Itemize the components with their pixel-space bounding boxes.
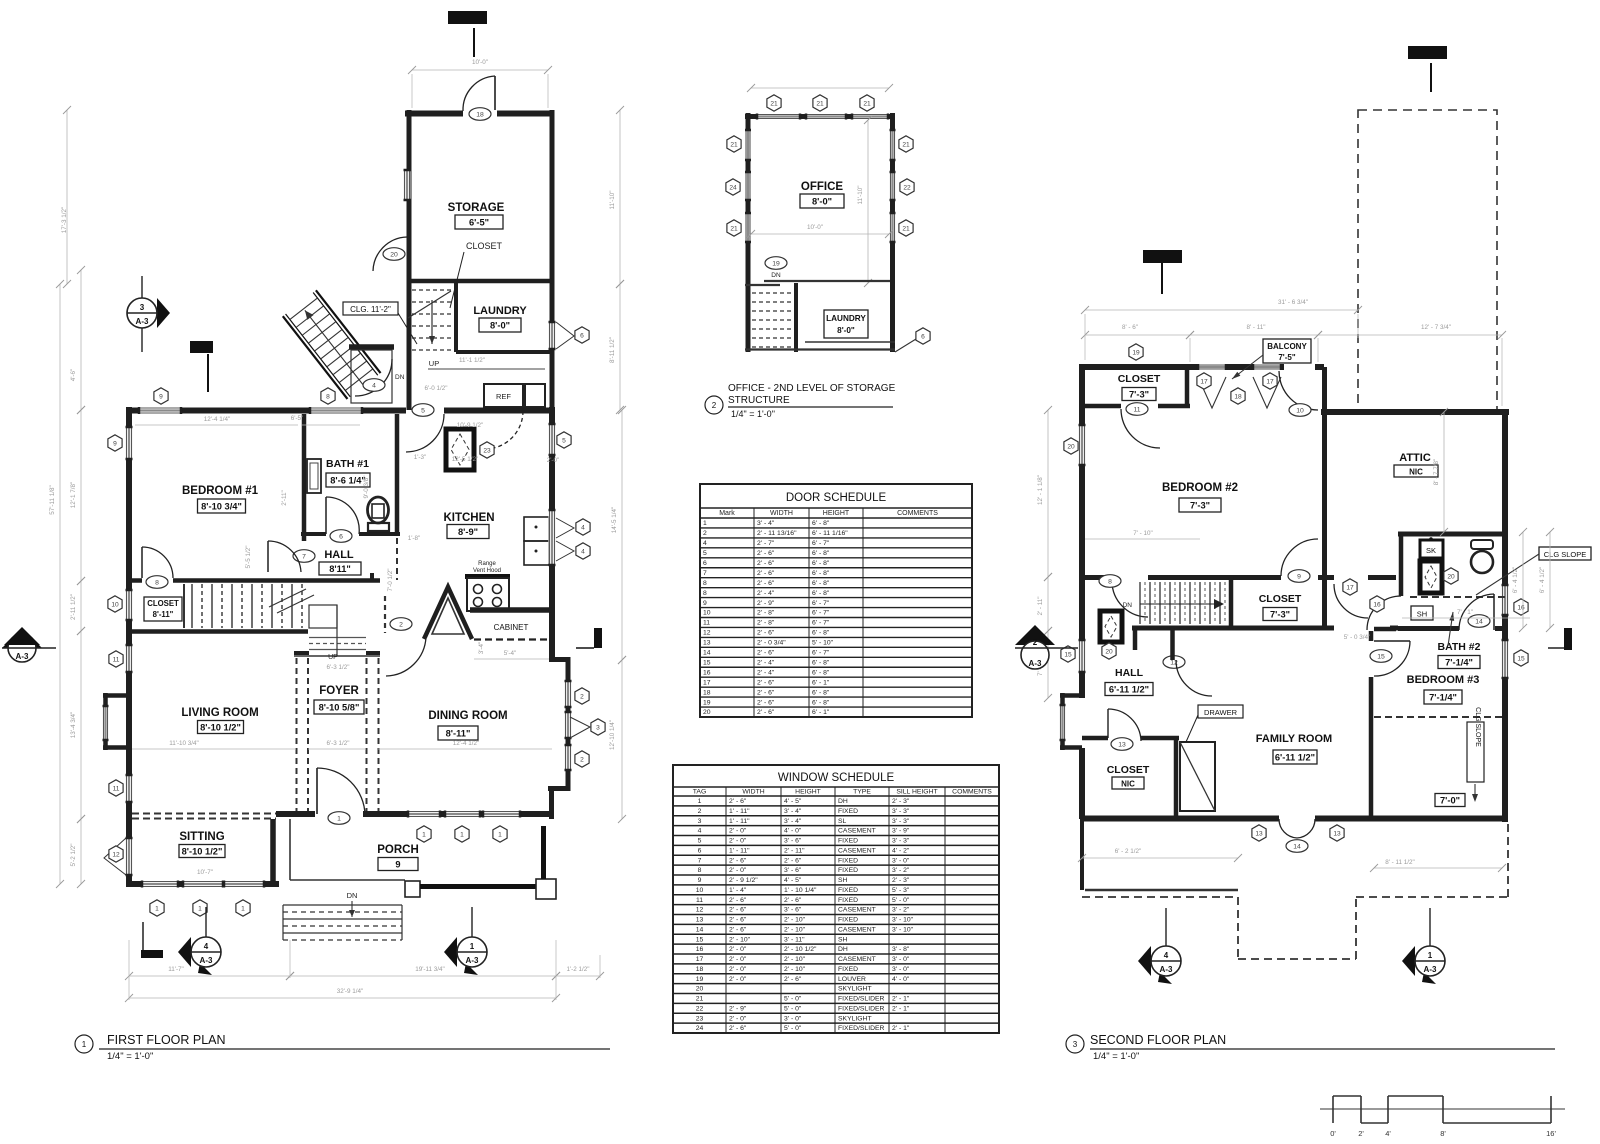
svg-text:6: 6 (580, 332, 584, 339)
svg-text:21: 21 (816, 100, 824, 107)
svg-text:12'-5 1/2": 12'-5 1/2" (452, 456, 479, 463)
svg-text:1: 1 (198, 905, 202, 912)
svg-text:DN: DN (1123, 602, 1133, 609)
svg-text:FIXED: FIXED (838, 897, 858, 904)
svg-text:6'-11 1/2": 6'-11 1/2" (1109, 684, 1149, 694)
svg-text:16': 16' (1546, 1129, 1556, 1138)
svg-text:14: 14 (1475, 618, 1483, 625)
svg-text:13: 13 (696, 917, 704, 924)
svg-text:10: 10 (703, 610, 711, 617)
svg-text:6: 6 (921, 333, 925, 340)
svg-text:8'-0": 8'-0" (837, 326, 855, 335)
svg-text:6: 6 (703, 560, 707, 567)
svg-text:14'-5 1/4": 14'-5 1/4" (611, 507, 618, 534)
svg-text:8'-10 5/8": 8'-10 5/8" (319, 702, 360, 712)
svg-text:5'-4": 5'-4" (504, 650, 517, 657)
svg-text:10'-0": 10'-0" (472, 59, 488, 66)
svg-text:6'-5": 6'-5" (469, 217, 489, 227)
svg-text:5' - 3": 5' - 3" (892, 887, 910, 894)
svg-text:1: 1 (422, 831, 426, 838)
svg-text:8' - 11 1/2": 8' - 11 1/2" (1385, 859, 1415, 866)
svg-text:HALL: HALL (1115, 667, 1144, 679)
svg-text:KITCHEN: KITCHEN (443, 512, 494, 524)
svg-text:FIXED/SLIDER: FIXED/SLIDER (838, 1025, 885, 1032)
svg-text:7'-5": 7'-5" (1278, 353, 1295, 362)
svg-text:12'-1 7/8": 12'-1 7/8" (70, 482, 77, 509)
svg-text:8' - 7 7/8": 8' - 7 7/8" (1433, 459, 1440, 486)
svg-text:10: 10 (111, 601, 119, 608)
svg-text:2' - 10 1/2": 2' - 10 1/2" (784, 946, 817, 953)
svg-text:3' - 0": 3' - 0" (892, 857, 910, 864)
svg-text:2'-0": 2'-0" (547, 457, 560, 464)
svg-text:19: 19 (772, 260, 780, 267)
svg-text:8: 8 (1108, 578, 1112, 585)
svg-text:22: 22 (696, 1005, 704, 1012)
svg-text:A-3: A-3 (1029, 659, 1042, 668)
svg-text:5: 5 (703, 550, 707, 557)
svg-text:DRAWER: DRAWER (1204, 708, 1238, 717)
svg-text:8: 8 (155, 579, 159, 586)
svg-text:FAMILY ROOM: FAMILY ROOM (1256, 733, 1332, 745)
svg-text:4': 4' (1385, 1129, 1391, 1138)
svg-text:5' - 10": 5' - 10" (812, 640, 834, 647)
svg-text:Mark: Mark (719, 510, 735, 517)
svg-text:11'-7": 11'-7" (168, 966, 184, 973)
svg-text:2' - 6": 2' - 6" (729, 1025, 747, 1032)
svg-text:BATH #2: BATH #2 (1438, 641, 1481, 653)
svg-text:2' - 3": 2' - 3" (892, 877, 910, 884)
svg-text:9: 9 (113, 440, 117, 447)
svg-text:22: 22 (903, 184, 911, 191)
svg-text:8' - 11": 8' - 11" (1246, 324, 1265, 331)
svg-text:1'-3": 1'-3" (414, 454, 427, 461)
svg-text:2' - 6": 2' - 6" (757, 689, 775, 696)
svg-text:19: 19 (696, 976, 704, 983)
svg-text:SH: SH (838, 936, 848, 943)
svg-text:7'-0 1/2": 7'-0 1/2" (387, 568, 394, 591)
svg-text:21: 21 (730, 141, 738, 148)
svg-text:5' - 0": 5' - 0" (784, 1025, 802, 1032)
svg-text:Vent Hood: Vent Hood (473, 568, 501, 574)
svg-text:12' - 1 1/8": 12' - 1 1/8" (1037, 475, 1044, 505)
svg-text:8'-0": 8'-0" (490, 320, 510, 330)
svg-text:20: 20 (390, 251, 398, 258)
svg-text:4' - 0": 4' - 0" (784, 828, 802, 835)
svg-text:7'-3": 7'-3" (1129, 389, 1149, 399)
svg-text:4' - 2": 4' - 2" (892, 847, 910, 854)
svg-text:1' - 11": 1' - 11" (729, 808, 750, 815)
svg-text:16: 16 (696, 946, 704, 953)
svg-text:5'-5 1/2": 5'-5 1/2" (245, 545, 252, 568)
svg-text:8'-10 1/2": 8'-10 1/2" (200, 722, 241, 732)
svg-text:2' - 11": 2' - 11" (784, 847, 805, 854)
svg-text:3' - 10": 3' - 10" (892, 917, 914, 924)
svg-text:9: 9 (395, 859, 400, 869)
svg-text:FIXED: FIXED (838, 838, 858, 845)
svg-text:CLOSET: CLOSET (147, 599, 179, 608)
svg-text:LIVING ROOM: LIVING ROOM (181, 707, 258, 719)
svg-text:1' - 10 1/4": 1' - 10 1/4" (784, 887, 817, 894)
svg-text:6' - 4 1/2": 6' - 4 1/2" (1539, 567, 1546, 594)
svg-text:2' - 6": 2' - 6" (729, 926, 747, 933)
svg-text:A-3: A-3 (466, 956, 479, 965)
svg-text:10: 10 (696, 887, 704, 894)
svg-text:14: 14 (696, 926, 704, 933)
svg-text:FIXED/SLIDER: FIXED/SLIDER (838, 996, 885, 1003)
svg-text:6' - 8": 6' - 8" (812, 560, 830, 567)
svg-text:TAG: TAG (693, 789, 706, 796)
svg-text:6' - 1": 6' - 1" (812, 679, 830, 686)
svg-text:2' - 6": 2' - 6" (784, 976, 802, 983)
svg-text:2: 2 (1033, 638, 1038, 647)
svg-text:DOOR SCHEDULE: DOOR SCHEDULE (786, 492, 887, 504)
svg-text:8: 8 (698, 867, 702, 874)
svg-text:8'-11": 8'-11" (446, 728, 471, 738)
svg-text:2' - 10": 2' - 10" (729, 936, 751, 943)
svg-text:1: 1 (460, 831, 464, 838)
svg-text:2' - 6": 2' - 6" (757, 699, 775, 706)
svg-text:12' - 7 3/4": 12' - 7 3/4" (1421, 324, 1451, 331)
svg-text:3' - 4": 3' - 4" (784, 818, 802, 825)
svg-text:BATH #1: BATH #1 (326, 458, 369, 470)
svg-text:17: 17 (1266, 378, 1274, 385)
svg-text:11: 11 (113, 785, 120, 792)
svg-text:SECOND FLOOR PLAN: SECOND FLOOR PLAN (1090, 1033, 1226, 1047)
svg-text:12'-10 1/4": 12'-10 1/4" (609, 720, 616, 750)
svg-text:8'-0": 8'-0" (812, 196, 832, 206)
svg-text:6'-3 1/2": 6'-3 1/2" (326, 740, 349, 747)
svg-text:A-3: A-3 (1424, 965, 1437, 974)
svg-text:SH: SH (1417, 610, 1427, 619)
svg-text:19: 19 (703, 699, 711, 706)
svg-text:2' - 9": 2' - 9" (757, 600, 775, 607)
svg-text:4: 4 (204, 942, 209, 951)
svg-text:2' - 0": 2' - 0" (729, 966, 747, 973)
svg-text:17: 17 (1200, 378, 1208, 385)
svg-text:3' - 4": 3' - 4" (757, 520, 775, 527)
svg-text:CASEMENT: CASEMENT (838, 847, 876, 854)
svg-text:6' - 8": 6' - 8" (812, 580, 830, 587)
svg-text:SK: SK (1426, 546, 1436, 555)
svg-text:2' - 6": 2' - 6" (729, 897, 747, 904)
svg-text:1/4" = 1'-0": 1/4" = 1'-0" (731, 409, 775, 419)
svg-text:17: 17 (703, 679, 711, 686)
svg-text:7'-1/4": 7'-1/4" (1429, 692, 1457, 702)
svg-text:4' - 0": 4' - 0" (892, 976, 910, 983)
svg-text:2' - 6": 2' - 6" (729, 917, 747, 924)
svg-text:2' - 0": 2' - 0" (729, 867, 747, 874)
svg-text:3: 3 (698, 818, 702, 825)
svg-text:UP: UP (328, 654, 338, 661)
svg-text:2'-11 1/2": 2'-11 1/2" (70, 594, 77, 620)
svg-text:2' - 10": 2' - 10" (784, 926, 806, 933)
svg-text:6' - 1": 6' - 1" (812, 709, 830, 716)
svg-text:15: 15 (703, 659, 711, 666)
svg-text:3' - 2": 3' - 2" (892, 907, 910, 914)
svg-text:6' - 8": 6' - 8" (812, 689, 830, 696)
svg-text:1: 1 (703, 520, 707, 527)
svg-text:6'-3 1/2": 6'-3 1/2" (326, 664, 349, 671)
svg-text:DH: DH (838, 946, 848, 953)
svg-text:20: 20 (696, 986, 704, 993)
svg-text:3'-4": 3'-4" (478, 642, 485, 655)
svg-text:2' - 10": 2' - 10" (784, 956, 806, 963)
svg-text:1: 1 (470, 942, 475, 951)
svg-text:2' - 11 13/16": 2' - 11 13/16" (757, 530, 797, 537)
svg-text:2' - 0": 2' - 0" (729, 956, 747, 963)
svg-text:1: 1 (241, 905, 245, 912)
svg-text:2' - 0": 2' - 0" (729, 976, 747, 983)
svg-text:5'-2 1/2": 5'-2 1/2" (70, 843, 77, 866)
svg-text:3' - 3": 3' - 3" (892, 838, 910, 845)
svg-text:2' - 4": 2' - 4" (757, 590, 775, 597)
svg-text:1: 1 (337, 815, 341, 822)
svg-text:3: 3 (140, 303, 145, 312)
svg-text:8'-6 1/4": 8'-6 1/4" (330, 475, 366, 485)
svg-text:BALCONY: BALCONY (1267, 342, 1307, 351)
svg-text:13: 13 (1333, 830, 1341, 837)
svg-text:1: 1 (155, 905, 159, 912)
svg-text:2' - 9 1/2": 2' - 9 1/2" (729, 877, 758, 884)
svg-text:DN: DN (347, 891, 358, 900)
svg-text:3' - 11": 3' - 11" (784, 936, 805, 943)
svg-text:OFFICE - 2ND LEVEL OF STORAGE: OFFICE - 2ND LEVEL OF STORAGE (728, 383, 896, 394)
svg-text:4' - 5": 4' - 5" (784, 798, 802, 805)
svg-text:1: 1 (698, 798, 702, 805)
svg-text:CLOSET: CLOSET (466, 241, 503, 251)
svg-text:10: 10 (1296, 407, 1304, 414)
svg-text:6' - 8": 6' - 8" (812, 550, 830, 557)
svg-text:23: 23 (696, 1015, 704, 1022)
svg-text:2': 2' (1358, 1129, 1364, 1138)
svg-text:4: 4 (581, 548, 585, 555)
svg-text:17: 17 (696, 956, 704, 963)
svg-text:DN: DN (395, 374, 405, 381)
svg-text:1: 1 (498, 831, 502, 838)
svg-text:CASEMENT: CASEMENT (838, 926, 876, 933)
svg-text:11'-10 3/4": 11'-10 3/4" (169, 740, 199, 747)
svg-text:18: 18 (1234, 393, 1242, 400)
svg-text:4: 4 (581, 524, 585, 531)
svg-text:15: 15 (1517, 655, 1525, 662)
svg-text:2' - 1": 2' - 1" (892, 1005, 910, 1012)
svg-text:7'-1/4": 7'-1/4" (1445, 657, 1473, 667)
svg-text:4' - 5": 4' - 5" (784, 877, 802, 884)
svg-text:4: 4 (372, 382, 376, 389)
svg-text:13'-4 3/4": 13'-4 3/4" (70, 712, 77, 739)
svg-text:6' - 8": 6' - 8" (812, 699, 830, 706)
svg-text:3' - 6": 3' - 6" (784, 907, 802, 914)
svg-text:15: 15 (696, 936, 704, 943)
svg-text:CLG. 11'-2": CLG. 11'-2" (350, 305, 391, 314)
svg-text:FIXED: FIXED (838, 966, 858, 973)
svg-text:10'-0": 10'-0" (807, 224, 823, 231)
svg-text:5: 5 (562, 437, 566, 444)
svg-text:4: 4 (698, 828, 702, 835)
svg-text:1'-8": 1'-8" (408, 535, 421, 542)
svg-text:SKYLIGHT: SKYLIGHT (838, 986, 872, 993)
svg-text:6' - 7": 6' - 7" (812, 600, 830, 607)
svg-text:CLOSET: CLOSET (1107, 764, 1150, 776)
svg-text:DN: DN (771, 272, 781, 279)
svg-text:12: 12 (696, 907, 704, 914)
svg-text:2' - 8": 2' - 8" (757, 610, 775, 617)
svg-text:A-3: A-3 (136, 317, 149, 326)
svg-text:6'-11 1/2": 6'-11 1/2" (1275, 752, 1315, 762)
svg-text:WIDTH: WIDTH (770, 510, 793, 517)
svg-text:6' - 2 1/2": 6' - 2 1/2" (1115, 848, 1142, 855)
svg-text:3: 3 (1073, 1040, 1078, 1049)
svg-text:CASEMENT: CASEMENT (838, 907, 876, 914)
svg-text:FIXED: FIXED (838, 887, 858, 894)
svg-text:HEIGHT: HEIGHT (795, 789, 821, 796)
svg-text:CASEMENT: CASEMENT (838, 828, 876, 835)
svg-text:1'-2 1/2": 1'-2 1/2" (566, 966, 589, 973)
svg-text:3: 3 (596, 724, 600, 731)
svg-text:6' - 7": 6' - 7" (812, 540, 830, 547)
svg-text:8'-10 1/2": 8'-10 1/2" (182, 846, 223, 856)
svg-text:2' - 9": 2' - 9" (729, 1005, 747, 1012)
svg-text:CASEMENT: CASEMENT (838, 956, 876, 963)
svg-text:SILL HEIGHT: SILL HEIGHT (896, 789, 937, 796)
svg-text:2' - 6": 2' - 6" (757, 630, 775, 637)
svg-text:8'-11 1/2": 8'-11 1/2" (609, 337, 616, 363)
svg-text:LAUNDRY: LAUNDRY (826, 314, 866, 323)
svg-text:2'-11": 2'-11" (281, 490, 288, 506)
svg-text:2: 2 (399, 621, 403, 628)
svg-text:8'-11": 8'-11" (153, 610, 174, 619)
svg-text:LOUVER: LOUVER (838, 976, 866, 983)
svg-text:FIXED: FIXED (838, 917, 858, 924)
svg-text:31' - 6 3/4": 31' - 6 3/4" (1278, 299, 1308, 306)
svg-text:1' - 11": 1' - 11" (729, 818, 750, 825)
svg-text:6'-5": 6'-5" (291, 415, 304, 422)
svg-text:BEDROOM #2: BEDROOM #2 (1162, 482, 1238, 494)
svg-text:2' - 6": 2' - 6" (729, 857, 747, 864)
svg-text:BEDROOM #1: BEDROOM #1 (182, 485, 259, 497)
svg-text:NIC: NIC (1409, 468, 1423, 477)
svg-text:7' - 1": 7' - 1" (1457, 609, 1473, 616)
svg-text:2' - 4": 2' - 4" (757, 669, 775, 676)
svg-text:3' - 0": 3' - 0" (892, 966, 910, 973)
svg-text:COMMENTS: COMMENTS (952, 789, 992, 796)
svg-text:OFFICE: OFFICE (801, 181, 843, 193)
svg-text:9'-0 3/8": 9'-0 3/8" (363, 475, 370, 498)
svg-text:4'-6": 4'-6" (70, 369, 77, 382)
svg-text:1: 1 (1428, 951, 1433, 960)
svg-text:15: 15 (1064, 651, 1072, 658)
svg-text:2' - 3": 2' - 3" (892, 798, 910, 805)
svg-text:6' - 8": 6' - 8" (812, 590, 830, 597)
svg-text:5: 5 (421, 407, 425, 414)
svg-text:2' - 4": 2' - 4" (757, 659, 775, 666)
svg-text:3' - 0": 3' - 0" (892, 956, 910, 963)
svg-text:11: 11 (113, 656, 120, 663)
svg-text:2' - 10": 2' - 10" (784, 966, 806, 973)
svg-text:FOYER: FOYER (319, 685, 359, 697)
svg-text:8'-9": 8'-9" (458, 527, 478, 537)
svg-text:7: 7 (698, 857, 702, 864)
svg-text:12'-4 1/2": 12'-4 1/2" (453, 740, 480, 747)
svg-text:2' - 6": 2' - 6" (757, 550, 775, 557)
svg-text:3' - 3": 3' - 3" (892, 808, 910, 815)
svg-text:10'-9 1/2": 10'-9 1/2" (457, 422, 484, 429)
svg-text:CLOSET: CLOSET (1259, 593, 1302, 605)
svg-text:1/4" = 1'-0": 1/4" = 1'-0" (107, 1051, 153, 1062)
svg-text:2' - 10": 2' - 10" (784, 917, 806, 924)
svg-text:9: 9 (698, 877, 702, 884)
svg-text:8: 8 (326, 393, 330, 400)
svg-text:FIXED: FIXED (838, 808, 858, 815)
svg-text:20: 20 (703, 709, 711, 716)
svg-text:16: 16 (703, 669, 711, 676)
svg-text:5' - 0 3/4": 5' - 0 3/4" (1344, 634, 1371, 641)
svg-text:24: 24 (696, 1025, 704, 1032)
svg-text:18: 18 (696, 966, 704, 973)
svg-text:2' - 0": 2' - 0" (729, 946, 747, 953)
svg-text:2' - 0": 2' - 0" (729, 838, 747, 845)
svg-text:9: 9 (1297, 573, 1301, 580)
svg-text:8: 8 (703, 580, 707, 587)
svg-text:2' - 6": 2' - 6" (757, 560, 775, 567)
svg-text:2: 2 (698, 808, 702, 815)
svg-text:6' - 8": 6' - 8" (812, 669, 830, 676)
svg-text:3' - 3": 3' - 3" (892, 818, 910, 825)
svg-text:SH: SH (838, 877, 848, 884)
svg-text:2' - 1": 2' - 1" (892, 1025, 910, 1032)
svg-text:2' - 1": 2' - 1" (892, 996, 910, 1003)
svg-text:1: 1 (82, 1040, 87, 1049)
svg-text:8'11": 8'11" (329, 564, 351, 574)
svg-text:13: 13 (703, 640, 711, 647)
svg-text:8'-10 3/4": 8'-10 3/4" (201, 501, 242, 511)
svg-text:TYPE: TYPE (853, 789, 871, 796)
svg-text:2' - 6": 2' - 6" (784, 897, 802, 904)
svg-text:CABINET: CABINET (494, 623, 529, 632)
svg-text:10'-7": 10'-7" (197, 869, 213, 876)
svg-text:SKYLIGHT: SKYLIGHT (838, 1015, 872, 1022)
svg-text:6' - 4 1/2": 6' - 4 1/2" (1512, 567, 1519, 594)
svg-text:2' - 6": 2' - 6" (729, 907, 747, 914)
svg-text:57'-11 1/8": 57'-11 1/8" (49, 485, 56, 515)
svg-text:3' - 8": 3' - 8" (892, 946, 910, 953)
svg-text:3' - 0": 3' - 0" (784, 1015, 802, 1022)
svg-text:HEIGHT: HEIGHT (823, 510, 850, 517)
svg-text:9: 9 (703, 600, 707, 607)
svg-text:UP: UP (429, 359, 439, 368)
svg-text:4: 4 (703, 540, 707, 547)
svg-text:Range: Range (478, 561, 496, 567)
svg-text:18: 18 (703, 689, 711, 696)
svg-text:STORAGE: STORAGE (448, 202, 505, 214)
svg-text:6: 6 (339, 533, 343, 540)
svg-text:3' - 4": 3' - 4" (784, 808, 802, 815)
svg-text:COMMENTS: COMMENTS (897, 510, 938, 517)
svg-text:PORCH: PORCH (377, 844, 419, 856)
svg-text:4: 4 (1164, 951, 1169, 960)
svg-text:FIXED: FIXED (838, 857, 858, 864)
svg-text:A-3: A-3 (1160, 965, 1173, 974)
svg-text:12'-4 1/4": 12'-4 1/4" (204, 416, 231, 423)
svg-text:2' - 6": 2' - 6" (729, 798, 747, 805)
svg-text:CLOSET: CLOSET (1118, 373, 1161, 385)
svg-text:2: 2 (712, 401, 717, 410)
svg-text:6' - 7": 6' - 7" (812, 610, 830, 617)
svg-text:1' - 11": 1' - 11" (729, 847, 750, 854)
svg-text:7: 7 (302, 553, 306, 560)
svg-text:A-3: A-3 (16, 652, 29, 661)
svg-text:7'-0": 7'-0" (1440, 795, 1460, 805)
